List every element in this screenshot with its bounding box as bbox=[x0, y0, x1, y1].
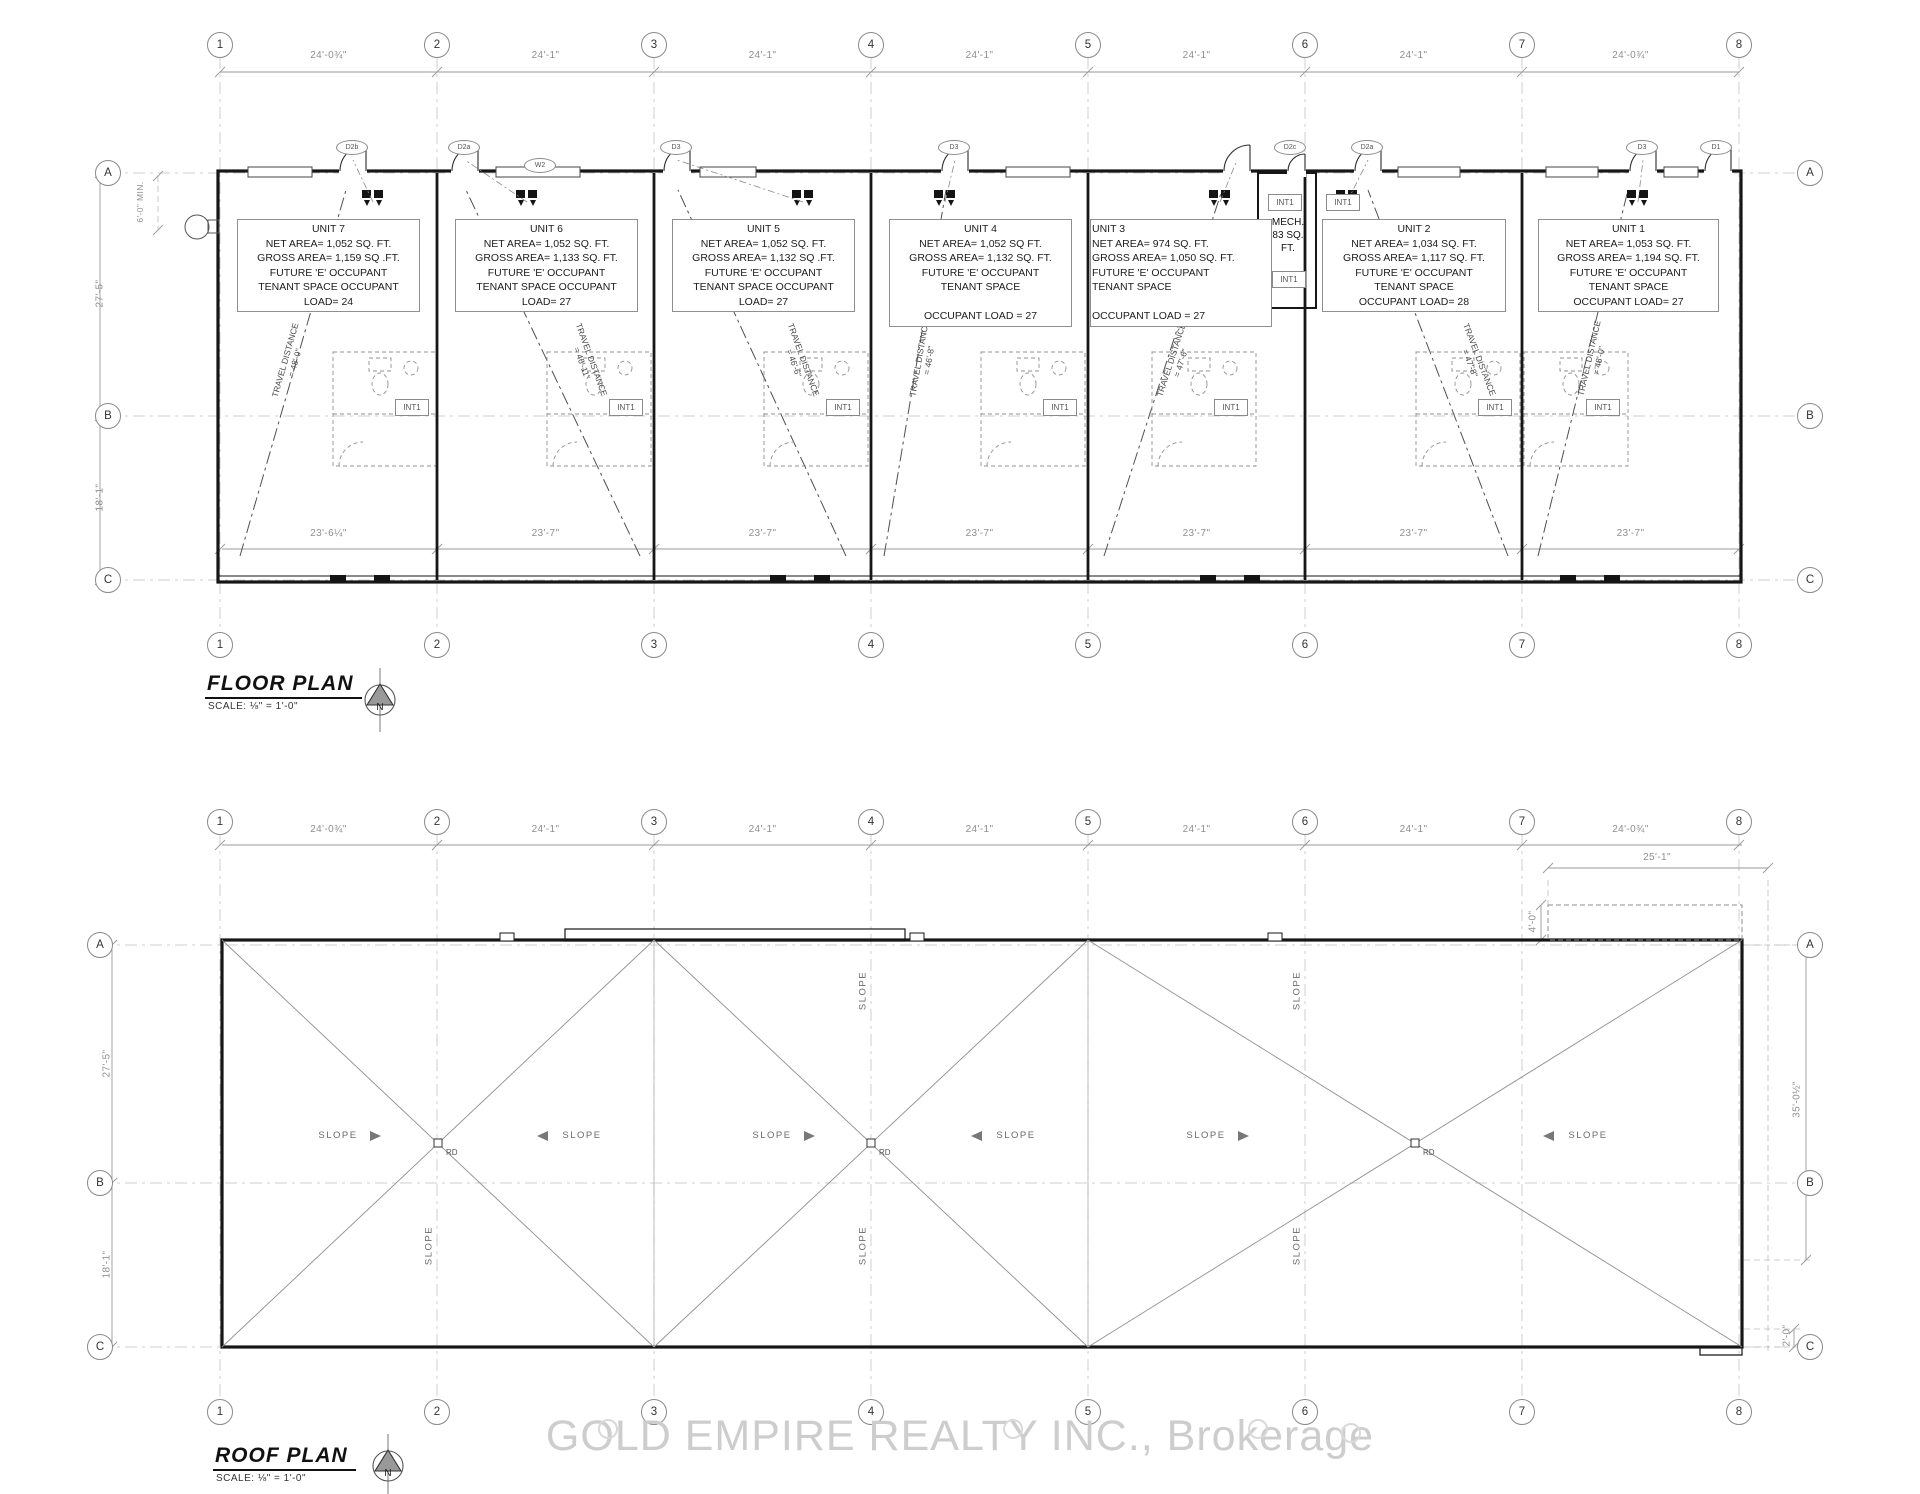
int1-tag: INT1 bbox=[1586, 399, 1620, 416]
dimension-label: 24'-1" bbox=[1369, 824, 1459, 835]
unit-title: UNIT 3 bbox=[1092, 222, 1270, 237]
unit-info-line: FUTURE 'E' OCCUPANT bbox=[1092, 266, 1270, 281]
unit-title: UNIT 5 bbox=[674, 222, 853, 237]
roof-drain-label: RD bbox=[879, 1148, 891, 1157]
grid-bubble-column: 3 bbox=[641, 32, 667, 58]
slope-label: SLOPE bbox=[1180, 1130, 1232, 1141]
roof-canopy-dashed bbox=[1548, 905, 1742, 940]
slope-label: SLOPE bbox=[556, 1130, 608, 1141]
dimension-label: 24'-1" bbox=[1369, 50, 1459, 61]
floor-plan-title: FLOOR PLAN bbox=[205, 672, 362, 699]
grid-bubble-row: C bbox=[1797, 567, 1823, 593]
roof-plan-scale: SCALE: ⅛" = 1'-0" bbox=[216, 1473, 306, 1484]
unit-info-line: NET AREA= 1,052 SQ FT. bbox=[891, 237, 1070, 252]
grid-bubble-column: 7 bbox=[1509, 809, 1535, 835]
int1-tag: INT1 bbox=[826, 399, 860, 416]
mech-room-label: MECH.83 SQ.FT. bbox=[1259, 216, 1317, 255]
door-tag: D2a bbox=[448, 140, 480, 155]
roof-drain-symbol bbox=[867, 1139, 875, 1147]
grid-bubble-row: C bbox=[87, 1334, 113, 1360]
washroom-layouts bbox=[333, 352, 1628, 466]
roof-plan-outline bbox=[222, 929, 1742, 1355]
slope-label-vertical: SLOPE bbox=[1292, 965, 1303, 1017]
unit-info-line: FUTURE 'E' OCCUPANT bbox=[1324, 266, 1504, 281]
roof-drain-symbol bbox=[434, 1139, 442, 1147]
grid-bubble-column: 6 bbox=[1292, 32, 1318, 58]
unit-info-line: FUTURE 'E' OCCUPANT bbox=[891, 266, 1070, 281]
dimension-label: 24'-1" bbox=[718, 824, 808, 835]
unit-info-box: UNIT 5NET AREA= 1,052 SQ. FT.GROSS AREA=… bbox=[672, 219, 855, 312]
unit-info-line: TENANT SPACE bbox=[1540, 280, 1717, 295]
unit-info-line: NET AREA= 974 SQ. FT. bbox=[1092, 237, 1270, 252]
roof-drain-label: RD bbox=[446, 1148, 458, 1157]
grid-bubble-column: 4 bbox=[858, 632, 884, 658]
slope-label-vertical: SLOPE bbox=[424, 1220, 435, 1272]
dimension-label: 24'-1" bbox=[935, 824, 1025, 835]
grid-bubble-row: B bbox=[95, 403, 121, 429]
int1-tag: INT1 bbox=[1214, 399, 1248, 416]
unit-info-box: UNIT 4NET AREA= 1,052 SQ FT.GROSS AREA= … bbox=[889, 219, 1072, 327]
unit-info-line: GROSS AREA= 1,117 SQ. FT. bbox=[1324, 251, 1504, 266]
unit-info-line: LOAD= 24 bbox=[239, 295, 418, 310]
grid-bubble-column: 7 bbox=[1509, 32, 1535, 58]
grid-bubble-column: 8 bbox=[1726, 632, 1752, 658]
dimension-label: 23'-7" bbox=[501, 528, 591, 539]
door-tag: D2b bbox=[336, 140, 368, 155]
dimension-label-rotated: 27'-5" bbox=[102, 1019, 113, 1109]
exit-sign-icons bbox=[362, 190, 1648, 206]
grid-bubble-column: 4 bbox=[858, 809, 884, 835]
slope-label: SLOPE bbox=[990, 1130, 1042, 1141]
dimension-label: 24'-1" bbox=[1152, 824, 1242, 835]
unit-title: UNIT 1 bbox=[1540, 222, 1717, 237]
dimension-label: 23'-6¼" bbox=[284, 528, 374, 539]
grid-bubble-row: C bbox=[1797, 1334, 1823, 1360]
mech-room-line: MECH. bbox=[1259, 216, 1317, 229]
dimension-label: 23'-7" bbox=[1369, 528, 1459, 539]
grid-bubble-column: 8 bbox=[1726, 809, 1752, 835]
unit-info-line: GROSS AREA= 1,132 SQ. FT. bbox=[891, 251, 1070, 266]
grid-bubble-row: B bbox=[87, 1170, 113, 1196]
unit-info-line: GROSS AREA= 1,194 SQ. FT. bbox=[1540, 251, 1717, 266]
unit-info-line: GROSS AREA= 1,132 SQ .FT. bbox=[674, 251, 853, 266]
dimension-label: 23'-7" bbox=[1586, 528, 1676, 539]
int1-tag: INT1 bbox=[395, 399, 429, 416]
slope-label-vertical: SLOPE bbox=[858, 965, 869, 1017]
watermark-flower-icon bbox=[1248, 1419, 1268, 1439]
site-fixture bbox=[185, 215, 209, 239]
int1-tag: INT1 bbox=[1268, 194, 1302, 211]
roof-outline bbox=[222, 940, 1742, 1347]
grid-bubble-column: 5 bbox=[1075, 632, 1101, 658]
grid-bubble-column: 8 bbox=[1726, 1399, 1752, 1425]
unit-info-line: FUTURE 'E' OCCUPANT bbox=[239, 266, 418, 281]
unit-info-line: OCCUPANT LOAD= 28 bbox=[1324, 295, 1504, 310]
grid-bubble-column: 3 bbox=[641, 809, 667, 835]
grid-bubble-column: 8 bbox=[1726, 32, 1752, 58]
dimension-label: 25'-1" bbox=[1612, 852, 1702, 863]
dimension-label: 23'-7" bbox=[718, 528, 808, 539]
door-tag: D3 bbox=[1626, 140, 1658, 155]
dimension-label-rotated: 35'-0½" bbox=[1792, 1055, 1803, 1145]
unit-info-box: UNIT 7NET AREA= 1,052 SQ. FT.GROSS AREA=… bbox=[237, 219, 420, 312]
grid-bubble-row: A bbox=[1797, 932, 1823, 958]
dimension-label: 24'-0¾" bbox=[1586, 50, 1676, 61]
door-tag: D3 bbox=[938, 140, 970, 155]
door-tag: D3 bbox=[660, 140, 692, 155]
unit-info-line: NET AREA= 1,052 SQ. FT. bbox=[239, 237, 418, 252]
watermark-flower-icon bbox=[1003, 1419, 1023, 1439]
dimension-label-rotated: 2'-0" bbox=[1782, 1291, 1793, 1381]
unit-info-line: TENANT SPACE OCCUPANT bbox=[457, 280, 636, 295]
door-tag: D1 bbox=[1700, 140, 1732, 155]
dimension-label: 23'-7" bbox=[935, 528, 1025, 539]
grid-bubble-column: 6 bbox=[1292, 632, 1318, 658]
unit-info-line bbox=[891, 295, 1070, 310]
watermark-flower-icon bbox=[1341, 1423, 1361, 1443]
grid-bubble-column: 3 bbox=[641, 632, 667, 658]
unit-info-line: OCCUPANT LOAD = 27 bbox=[891, 309, 1070, 324]
dimension-label: 24'-1" bbox=[501, 824, 591, 835]
unit-info-line: GROSS AREA= 1,159 SQ .FT. bbox=[239, 251, 418, 266]
dimension-label: 24'-0¾" bbox=[1586, 824, 1676, 835]
grid-bubble-row: A bbox=[1797, 160, 1823, 186]
unit-title: UNIT 4 bbox=[891, 222, 1070, 237]
dimension-label: 23'-7" bbox=[1152, 528, 1242, 539]
grid-bubble-row: B bbox=[1797, 1170, 1823, 1196]
unit-info-line: NET AREA= 1,052 SQ. FT. bbox=[674, 237, 853, 252]
unit-info-line: NET AREA= 1,052 SQ. FT. bbox=[457, 237, 636, 252]
floor-plan-scale: SCALE: ⅛" = 1'-0" bbox=[208, 701, 298, 712]
int1-tag: INT1 bbox=[1478, 399, 1512, 416]
slope-arrows bbox=[370, 1131, 1554, 1141]
door-tag: W2 bbox=[524, 158, 556, 173]
unit-info-line: GROSS AREA= 1,050 SQ. FT. bbox=[1092, 251, 1270, 266]
dimension-label: 24'-1" bbox=[501, 50, 591, 61]
unit-info-line: TENANT SPACE bbox=[1324, 280, 1504, 295]
unit-info-line: OCCUPANT LOAD= 27 bbox=[1540, 295, 1717, 310]
grid-bubble-column: 2 bbox=[424, 32, 450, 58]
grid-bubble-column: 2 bbox=[424, 809, 450, 835]
roof-slope-lines bbox=[222, 905, 1742, 1347]
unit-info-line: GROSS AREA= 1,133 SQ. FT. bbox=[457, 251, 636, 266]
unit-info-box: UNIT 2NET AREA= 1,034 SQ. FT.GROSS AREA=… bbox=[1322, 219, 1506, 312]
slope-label: SLOPE bbox=[1562, 1130, 1614, 1141]
unit-info-line: TENANT SPACE OCCUPANT bbox=[239, 280, 418, 295]
unit-info-line: LOAD= 27 bbox=[674, 295, 853, 310]
grid-bubble-column: 2 bbox=[424, 1399, 450, 1425]
grid-bubble-row: A bbox=[87, 932, 113, 958]
unit-title: UNIT 6 bbox=[457, 222, 636, 237]
north-arrow-label: N bbox=[376, 1468, 400, 1479]
grid-bubble-column: 5 bbox=[1075, 809, 1101, 835]
grid-bubble-column: 7 bbox=[1509, 1399, 1535, 1425]
grid-bubble-column: 1 bbox=[207, 32, 233, 58]
watermark-flower-icon bbox=[598, 1419, 618, 1439]
slope-label-vertical: SLOPE bbox=[858, 1220, 869, 1272]
roof-plan-title: ROOF PLAN bbox=[213, 1444, 356, 1471]
slope-label-vertical: SLOPE bbox=[1292, 1220, 1303, 1272]
grid-bubble-column: 6 bbox=[1292, 809, 1318, 835]
north-arrow-label: N bbox=[368, 702, 392, 713]
unit-info-line: NET AREA= 1,034 SQ. FT. bbox=[1324, 237, 1504, 252]
unit-info-line: TENANT SPACE OCCUPANT bbox=[674, 280, 853, 295]
unit-info-line: FUTURE 'E' OCCUPANT bbox=[674, 266, 853, 281]
grid-bubble-column: 1 bbox=[207, 809, 233, 835]
roof-drain-symbol bbox=[1411, 1139, 1419, 1147]
grid-bubble-column: 7 bbox=[1509, 632, 1535, 658]
unit-info-line: FUTURE 'E' OCCUPANT bbox=[1540, 266, 1717, 281]
unit-info-box: UNIT 6NET AREA= 1,052 SQ. FT.GROSS AREA=… bbox=[455, 219, 638, 312]
dimension-label-rotated: 27'-5" bbox=[95, 249, 106, 339]
unit-info-box: UNIT 1NET AREA= 1,053 SQ. FT.GROSS AREA=… bbox=[1538, 219, 1719, 312]
unit-info-line bbox=[1092, 295, 1270, 310]
grid-bubble-column: 2 bbox=[424, 632, 450, 658]
unit-info-line: OCCUPANT LOAD = 27 bbox=[1092, 309, 1270, 324]
dimension-label-rotated: 18'-1" bbox=[95, 453, 106, 543]
grid-bubble-column: 4 bbox=[858, 32, 884, 58]
watermark: GOLD EMPIRE REALTY INC., Brokerage bbox=[520, 1412, 1400, 1461]
roof-drain-label: RD bbox=[1423, 1148, 1435, 1157]
architectural-drawing-sheet: FLOOR PLAN SCALE: ⅛" = 1'-0" ROOF PLAN S… bbox=[0, 0, 1920, 1494]
grid-bubble-row: A bbox=[95, 160, 121, 186]
unit-info-line: FUTURE 'E' OCCUPANT bbox=[457, 266, 636, 281]
dimension-label: 24'-1" bbox=[1152, 50, 1242, 61]
north-arrow-icon bbox=[365, 668, 403, 1494]
unit-info-line: NET AREA= 1,053 SQ. FT. bbox=[1540, 237, 1717, 252]
int1-tag: INT1 bbox=[1272, 271, 1306, 288]
grid-bubble-column: 1 bbox=[207, 1399, 233, 1425]
mech-room-line: 83 SQ. bbox=[1259, 229, 1317, 242]
unit-info-line: LOAD= 27 bbox=[457, 295, 636, 310]
unit-title: UNIT 7 bbox=[239, 222, 418, 237]
unit-info-line: TENANT SPACE bbox=[1092, 280, 1270, 295]
dimension-label: 24'-1" bbox=[935, 50, 1025, 61]
dimension-label: 24'-1" bbox=[718, 50, 808, 61]
int1-tag: INT1 bbox=[609, 399, 643, 416]
slope-label: SLOPE bbox=[746, 1130, 798, 1141]
door-tag: D2c bbox=[1274, 140, 1306, 155]
grid-bubble-row: B bbox=[1797, 403, 1823, 429]
unit-info-line: TENANT SPACE bbox=[891, 280, 1070, 295]
unit-info-box: UNIT 3NET AREA= 974 SQ. FT.GROSS AREA= 1… bbox=[1090, 219, 1272, 327]
mech-room-line: FT. bbox=[1259, 242, 1317, 255]
dimension-label-rotated: 18'-1" bbox=[102, 1220, 113, 1310]
door-tag: D2a bbox=[1351, 140, 1383, 155]
int1-tag: INT1 bbox=[1043, 399, 1077, 416]
dimension-label: 24'-0¾" bbox=[284, 50, 374, 61]
int1-tag: INT1 bbox=[1326, 194, 1360, 211]
dimension-label-rotated: 4'-0" bbox=[1528, 877, 1539, 967]
unit-title: UNIT 2 bbox=[1324, 222, 1504, 237]
grid-bubble-row: C bbox=[95, 567, 121, 593]
slope-label: SLOPE bbox=[312, 1130, 364, 1141]
min-clearance-label: 6'-0" MIN. bbox=[135, 157, 145, 247]
grid-bubble-column: 5 bbox=[1075, 32, 1101, 58]
dimension-label: 24'-0¾" bbox=[284, 824, 374, 835]
grid-bubble-column: 1 bbox=[207, 632, 233, 658]
